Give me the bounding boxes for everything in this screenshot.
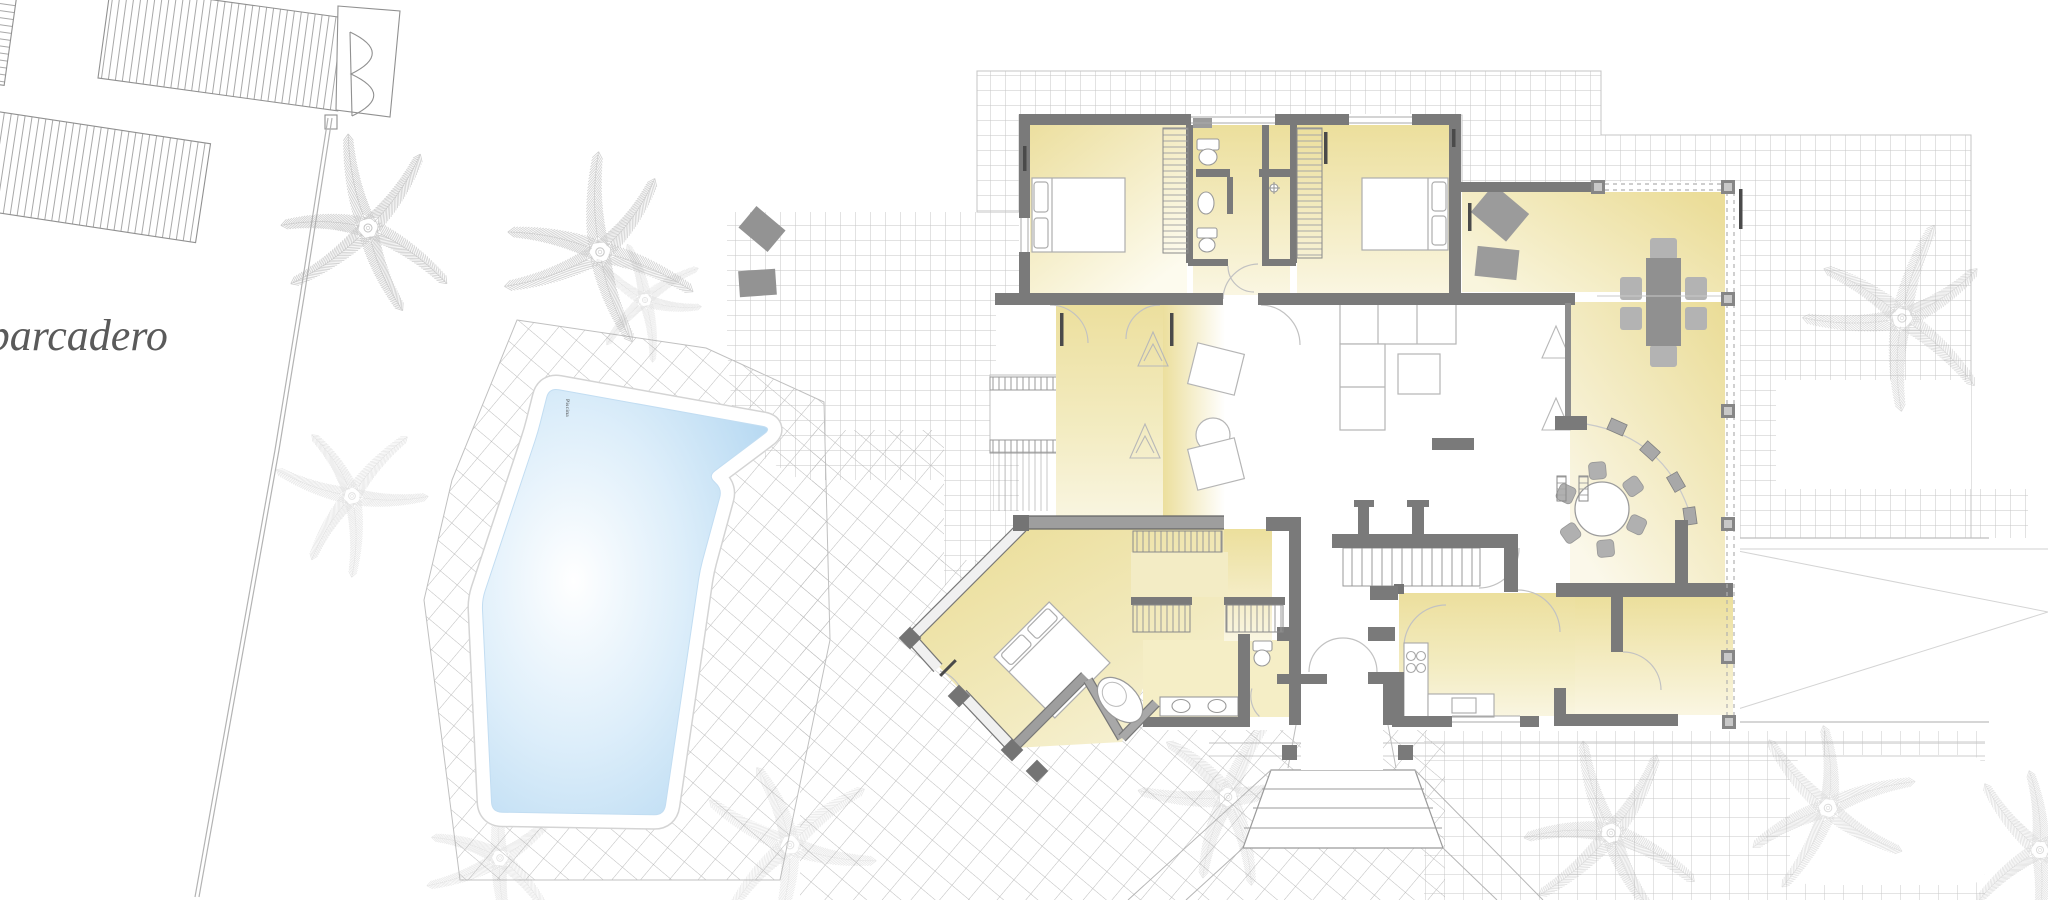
- svg-text:mbarcadero: mbarcadero: [0, 311, 168, 360]
- svg-text:Piscina: Piscina: [564, 399, 570, 417]
